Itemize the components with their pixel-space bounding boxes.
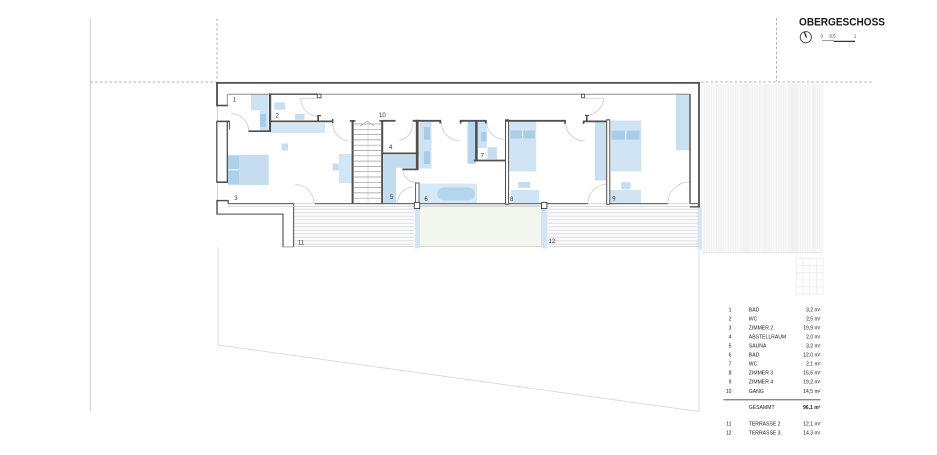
svg-text:SAUNA: SAUNA bbox=[749, 344, 767, 350]
svg-text:10: 10 bbox=[726, 389, 732, 395]
svg-text:3,2 m²: 3,2 m² bbox=[806, 307, 821, 313]
svg-text:ZIMMER 4: ZIMMER 4 bbox=[749, 380, 774, 386]
svg-text:2: 2 bbox=[729, 316, 732, 322]
svg-text:TERRASSE 3: TERRASSE 3 bbox=[749, 431, 781, 437]
svg-text:14,5 m²: 14,5 m² bbox=[803, 389, 821, 395]
svg-text:GESAMMT: GESAMMT bbox=[749, 405, 775, 411]
svg-text:WC: WC bbox=[749, 316, 758, 322]
svg-text:14,3 m²: 14,3 m² bbox=[803, 431, 821, 437]
svg-text:3: 3 bbox=[729, 325, 732, 331]
svg-text:ZIMMER 2: ZIMMER 2 bbox=[749, 325, 774, 331]
svg-text:9: 9 bbox=[729, 380, 732, 386]
svg-text:12: 12 bbox=[726, 431, 732, 437]
svg-text:WC: WC bbox=[749, 362, 758, 368]
svg-text:TERRASSE 2: TERRASSE 2 bbox=[749, 422, 781, 428]
svg-text:12,0 m²: 12,0 m² bbox=[803, 353, 821, 359]
svg-text:2,0 m²: 2,0 m² bbox=[806, 335, 821, 341]
svg-text:5: 5 bbox=[729, 344, 732, 350]
svg-text:19,2 m²: 19,2 m² bbox=[803, 380, 821, 386]
svg-text:BAD: BAD bbox=[749, 353, 760, 359]
svg-text:12: 12 bbox=[549, 239, 556, 245]
svg-text:BAD: BAD bbox=[749, 307, 760, 313]
svg-text:ZIMMER 3: ZIMMER 3 bbox=[749, 371, 774, 377]
svg-text:6: 6 bbox=[729, 353, 732, 359]
svg-text:16,5 m²: 16,5 m² bbox=[803, 371, 821, 377]
svg-text:2,1 m²: 2,1 m² bbox=[806, 362, 821, 368]
svg-text:OBERGESCHOSS: OBERGESCHOSS bbox=[799, 17, 885, 29]
svg-text:2,5 m²: 2,5 m² bbox=[806, 316, 821, 322]
svg-text:11: 11 bbox=[298, 241, 305, 247]
svg-text:ABSTELLRAUM: ABSTELLRAUM bbox=[749, 335, 786, 341]
svg-text:4: 4 bbox=[729, 335, 732, 341]
svg-text:96,1 m²: 96,1 m² bbox=[803, 405, 821, 411]
svg-text:19,9 m²: 19,9 m² bbox=[803, 325, 821, 331]
svg-text:GANG: GANG bbox=[749, 389, 764, 395]
svg-text:8: 8 bbox=[729, 371, 732, 377]
svg-text:7: 7 bbox=[729, 362, 732, 368]
svg-text:10: 10 bbox=[379, 113, 386, 119]
svg-text:1: 1 bbox=[729, 307, 732, 313]
svg-text:3,2 m²: 3,2 m² bbox=[806, 344, 821, 350]
svg-text:12,1 m²: 12,1 m² bbox=[803, 422, 821, 428]
svg-text:11: 11 bbox=[726, 422, 731, 428]
svg-text:0,5: 0,5 bbox=[830, 34, 836, 39]
